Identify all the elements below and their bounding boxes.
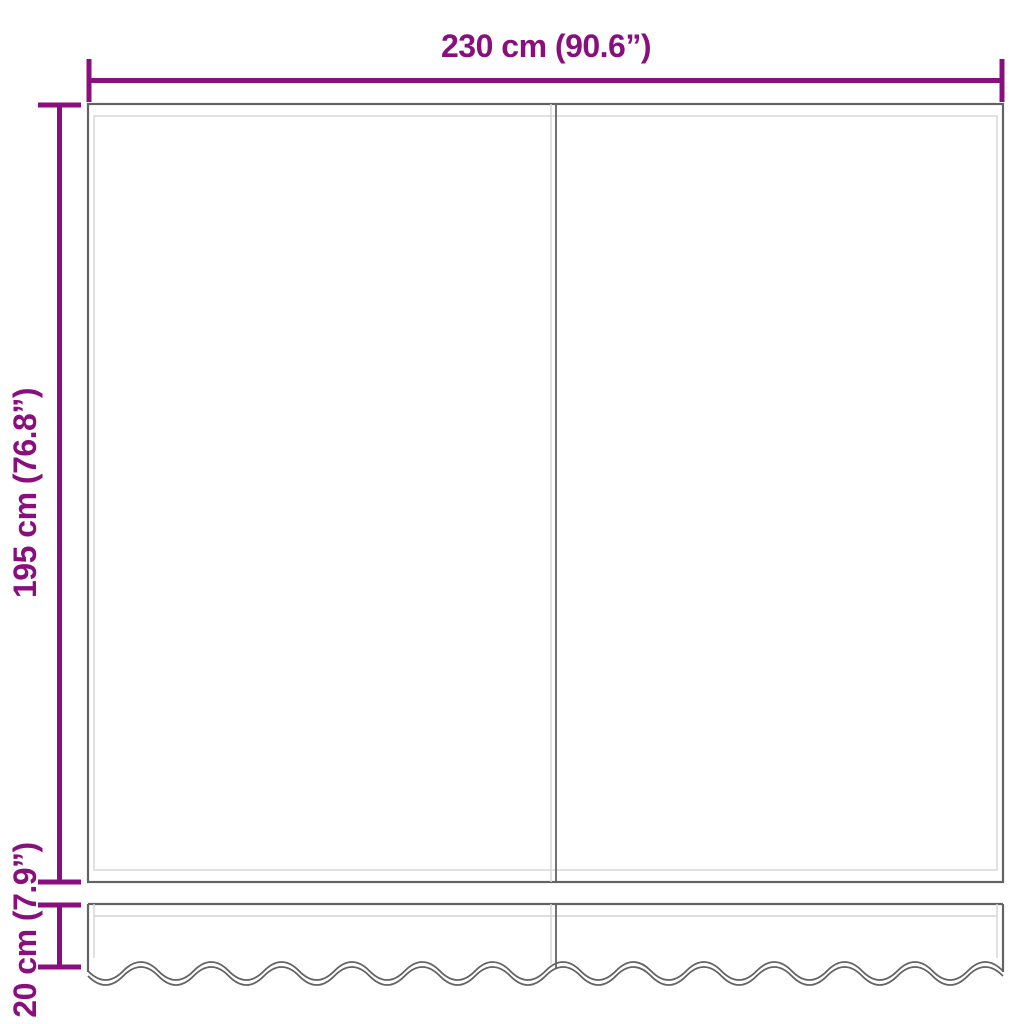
diagram-canvas: 230 cm (90.6”) 195 cm (76.8”) 20 cm (7.9… — [0, 0, 1024, 1024]
valance-height-dimension: 20 cm (7.9”) — [7, 842, 81, 1017]
width-dimension: 230 cm (90.6”) — [89, 28, 1002, 102]
fabric-panel — [88, 104, 1003, 882]
valance — [88, 904, 1003, 985]
fabric-panel-outline — [88, 104, 1003, 882]
height-dimension: 195 cm (76.8”) — [7, 105, 81, 882]
height-dimension-label: 195 cm (76.8”) — [7, 388, 43, 598]
valance-wave-lower — [88, 967, 1003, 985]
width-dimension-label: 230 cm (90.6”) — [441, 28, 651, 64]
awning-dimension-diagram: 230 cm (90.6”) 195 cm (76.8”) 20 cm (7.9… — [0, 0, 1024, 1024]
valance-height-dimension-label: 20 cm (7.9”) — [7, 842, 43, 1017]
fabric-panel-inner-seam — [94, 116, 997, 870]
valance-wave-upper — [88, 962, 1003, 980]
